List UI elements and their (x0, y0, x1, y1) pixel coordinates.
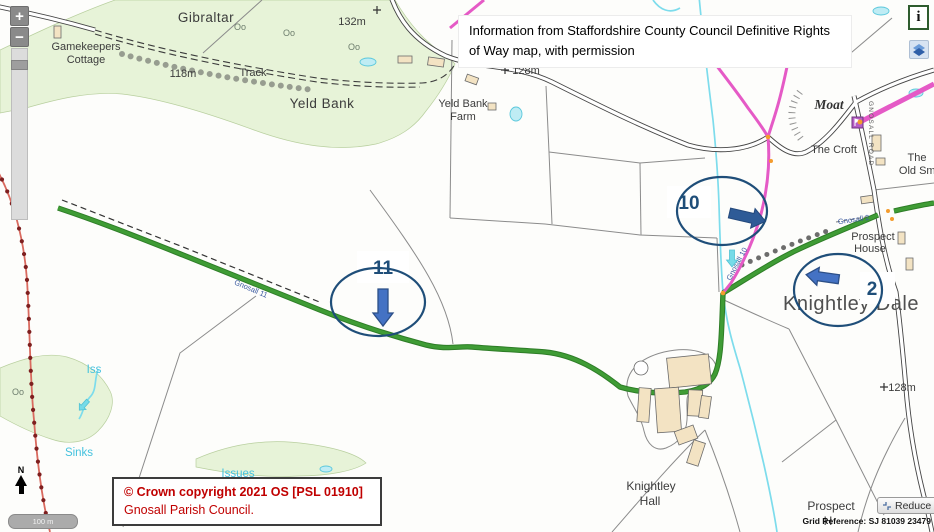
annotation-number-11: 11 (373, 258, 394, 279)
copyright-line1: © Crown copyright 2021 OS [PSL 01910] (124, 483, 370, 501)
zoom-slider[interactable] (11, 48, 28, 220)
svg-text:Oo: Oo (348, 42, 360, 52)
label-the-croft: The Croft (811, 144, 857, 156)
svg-text:Old Smit: Old Smit (899, 165, 934, 177)
grid-reference: Grid Reference: SJ 81039 23479 (802, 516, 931, 526)
label-118m: 118m (170, 68, 197, 80)
label-gibraltar: Gibraltar (178, 10, 234, 25)
reduce-icon (882, 501, 892, 511)
north-arrow-icon (15, 475, 27, 486)
label-132m: 132m (338, 16, 366, 28)
north-arrow: N (12, 466, 30, 494)
label-yeld-bank: Yeld Bank (290, 96, 355, 111)
label-track: Track (239, 67, 267, 79)
svg-text:House: House (854, 243, 886, 255)
svg-text:Hall: Hall (640, 494, 661, 508)
zoom-slider-handle[interactable] (11, 60, 28, 70)
annotation-2-backing (860, 272, 895, 304)
label-128m-b: 128m (888, 382, 916, 394)
zoom-out-button[interactable]: − (10, 27, 29, 47)
label-prospect-house: Prospect (851, 231, 894, 243)
layers-button[interactable] (909, 40, 929, 59)
label-old-smithy: The (908, 152, 927, 164)
annotation-number-2: 2 (867, 279, 878, 300)
svg-text:Oo: Oo (12, 387, 24, 397)
map-viewport[interactable]: Oo Oo Oo Oo Gibraltar Gamekeepers Cottag… (0, 0, 934, 532)
os-map-canvas: Oo Oo Oo Oo Gibraltar Gamekeepers Cottag… (0, 0, 934, 532)
label-yeld-bank-farm: Yeld Bank (438, 98, 488, 110)
info-button[interactable]: i (908, 5, 929, 30)
copyright-box: © Crown copyright 2021 OS [PSL 01910] Gn… (112, 477, 382, 526)
label-gamekeepers: Gamekeepers (51, 41, 121, 53)
label-iss: Iss (87, 364, 102, 376)
label-prospect-bottom: Prospect (807, 499, 855, 513)
scale-bar: 100 m (8, 514, 78, 529)
copyright-line2: Gnosall Parish Council. (124, 501, 370, 519)
moat-hachures (792, 92, 801, 139)
rights-of-way-notice: Information from Staffordshire County Co… (458, 15, 852, 68)
woodland-areas (0, 0, 455, 476)
zoom-in-button[interactable]: + (10, 6, 29, 26)
label-gnosall-road: GNOSALL ROAD (867, 101, 874, 166)
label-sinks: Sinks (65, 447, 93, 459)
annotation-number-10: 10 (678, 193, 699, 214)
label-moat: Moat (813, 97, 845, 112)
svg-text:Oo: Oo (283, 28, 295, 38)
svg-text:Farm: Farm (450, 111, 476, 123)
annotation-arrow-down-icon (373, 289, 393, 326)
label-cottage: Cottage (67, 54, 106, 66)
reduce-button[interactable]: Reduce (877, 497, 934, 514)
layers-icon (910, 41, 928, 58)
annotation-arrow-left-icon (805, 266, 840, 288)
svg-text:Oo: Oo (234, 22, 246, 32)
label-knightley-hall: Knightley (626, 479, 675, 493)
